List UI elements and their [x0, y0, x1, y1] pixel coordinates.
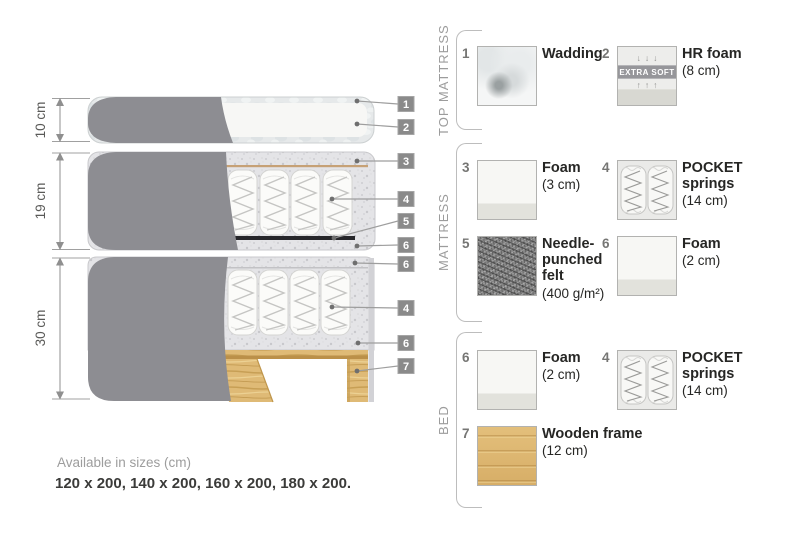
- legend-item-label: Wadding: [542, 46, 603, 62]
- callout-badge-1: 1: [398, 97, 414, 112]
- callout-badge-3: 3: [398, 154, 414, 169]
- legend-item-label: Foam (3 cm): [542, 160, 602, 194]
- legend-item-pocket-springs-bed: 4 POCKET springs (14 cm): [602, 350, 754, 410]
- svg-text:4: 4: [403, 303, 410, 315]
- svg-text:7: 7: [403, 361, 409, 373]
- pocket-springs-swatch: [617, 350, 677, 410]
- legend-item-hr-foam: 2 ↓↓↓ EXTRA SOFT ↑↑↑ HR foam (8 cm): [602, 46, 754, 106]
- legend-item-wadding: 1 Wadding: [462, 46, 602, 106]
- bed-section: [88, 257, 374, 402]
- hr-foam-core: [210, 103, 367, 137]
- callout-badge-6: 6: [398, 238, 414, 253]
- top-mattress-section: [88, 97, 374, 143]
- fabric-cover-top-mattress: [88, 97, 233, 143]
- svg-text:1: 1: [403, 99, 409, 111]
- dimension-arrows: [57, 99, 63, 399]
- callout-badge-4b: 4: [398, 301, 414, 316]
- legend-item-label: POCKET springs (14 cm): [682, 350, 754, 400]
- pocket-springs-swatch: [617, 160, 677, 220]
- callout-badge-6c: 6: [398, 336, 414, 351]
- legend-item-number: 4: [602, 350, 617, 365]
- legend-items-bed: 6 Foam (2 cm) 4: [462, 350, 754, 486]
- bed-right-edge: [369, 258, 375, 402]
- legend-item-pocket-springs: 4 POCKET springs (14 cm): [602, 160, 754, 220]
- dimension-label-10cm: 10 cm: [33, 102, 48, 139]
- legend-item-label: POCKET springs (14 cm): [682, 160, 754, 210]
- legend-item-label: Foam (2 cm): [542, 350, 602, 384]
- legend-item-number: 2: [602, 46, 617, 61]
- pocket-springs-icon: [618, 161, 676, 219]
- svg-text:5: 5: [403, 216, 409, 228]
- fabric-cover-bed: [88, 257, 231, 401]
- dimension-labels: 10 cm 19 cm 30 cm: [33, 102, 48, 347]
- legend-item-label: Foam (2 cm): [682, 236, 754, 270]
- legend-items-top-mattress: 1 Wadding 2 ↓↓↓ EXTRA SOFT ↑↑↑ HR foam (…: [462, 46, 754, 106]
- callout-badge-2: 2: [398, 120, 414, 135]
- sizes-note-title: Available in sizes (cm): [57, 455, 351, 470]
- wood-rail-shadow: [220, 356, 368, 360]
- legend-item-label: Needle-punched felt (400 g/m²): [542, 236, 604, 302]
- mattress-infographic: 10 cm 19 cm 30 cm 1 2 3: [0, 0, 800, 533]
- legend-item-label: Wooden frame (12 cm): [542, 426, 642, 460]
- foam-swatch: [477, 350, 537, 410]
- legend-item-felt: 5 Needle-punched felt (400 g/m²): [462, 236, 602, 302]
- wadding-swatch: [477, 46, 537, 106]
- section-title-top-mattress: TOP MATTRESS: [435, 30, 452, 130]
- arrows-down-icon: ↓↓↓: [633, 54, 662, 63]
- callout-badges: 1 2 3 4 5 6 6 4 6 7: [398, 97, 414, 374]
- section-title-bed: BED: [435, 332, 452, 508]
- foam-swatch: [617, 236, 677, 296]
- callout-badge-7: 7: [398, 359, 414, 374]
- pocket-springs-icon: [618, 351, 676, 409]
- bed-cross-section-diagram: 10 cm 19 cm 30 cm 1 2 3: [0, 0, 430, 533]
- legend-item-number: 5: [462, 236, 477, 251]
- top-foam-edge-line: [224, 165, 368, 167]
- section-title-mattress: MATTRESS: [435, 143, 452, 322]
- dimension-label-30cm: 30 cm: [33, 310, 48, 347]
- dimension-label-19cm: 19 cm: [33, 183, 48, 220]
- legend-item-foam-6: 6 Foam (2 cm): [602, 236, 754, 302]
- svg-text:6: 6: [403, 338, 409, 350]
- legend-item-number: 6: [602, 236, 617, 251]
- legend-items-mattress: 3 Foam (3 cm) 4: [462, 160, 754, 302]
- callout-badge-5: 5: [398, 214, 414, 229]
- legend-item-label: HR foam (8 cm): [682, 46, 754, 80]
- legend-item-number: 6: [462, 350, 477, 365]
- sizes-note-values: 120 x 200, 140 x 200, 160 x 200, 180 x 2…: [55, 475, 351, 492]
- legend-item-foam-bed: 6 Foam (2 cm): [462, 350, 602, 410]
- wooden-frame-swatch: [477, 426, 537, 486]
- callout-badge-6b: 6: [398, 257, 414, 272]
- sizes-note: Available in sizes (cm) 120 x 200, 140 x…: [57, 455, 351, 492]
- legend-item-number: 4: [602, 160, 617, 175]
- foam-swatch: [477, 160, 537, 220]
- legend-item-number: 3: [462, 160, 477, 175]
- wood-leg-right-edge: [347, 359, 350, 402]
- hr-foam-swatch: ↓↓↓ EXTRA SOFT ↑↑↑: [617, 46, 677, 106]
- svg-text:6: 6: [403, 240, 409, 252]
- needle-punched-felt-swatch: [477, 236, 537, 296]
- svg-text:2: 2: [403, 122, 409, 134]
- callout-badge-4: 4: [398, 192, 414, 207]
- legend-item-wooden-frame: 7 Wooden frame (12 cm): [462, 426, 602, 486]
- wood-leg-right: [347, 359, 368, 402]
- wood-leg-left: [224, 359, 273, 402]
- arrows-up-icon: ↑↑↑: [633, 81, 662, 90]
- legend-item-number: 7: [462, 426, 477, 441]
- legend-item-foam-3: 3 Foam (3 cm): [462, 160, 602, 220]
- legend-item-number: 1: [462, 46, 477, 61]
- svg-text:3: 3: [403, 156, 409, 168]
- bed-top-foam-edge-line: [224, 267, 368, 269]
- dimension-ticks: [52, 99, 90, 400]
- svg-text:6: 6: [403, 259, 409, 271]
- extra-soft-badge: EXTRA SOFT: [617, 65, 677, 79]
- fabric-cover-mattress: [88, 152, 238, 250]
- svg-text:4: 4: [403, 194, 410, 206]
